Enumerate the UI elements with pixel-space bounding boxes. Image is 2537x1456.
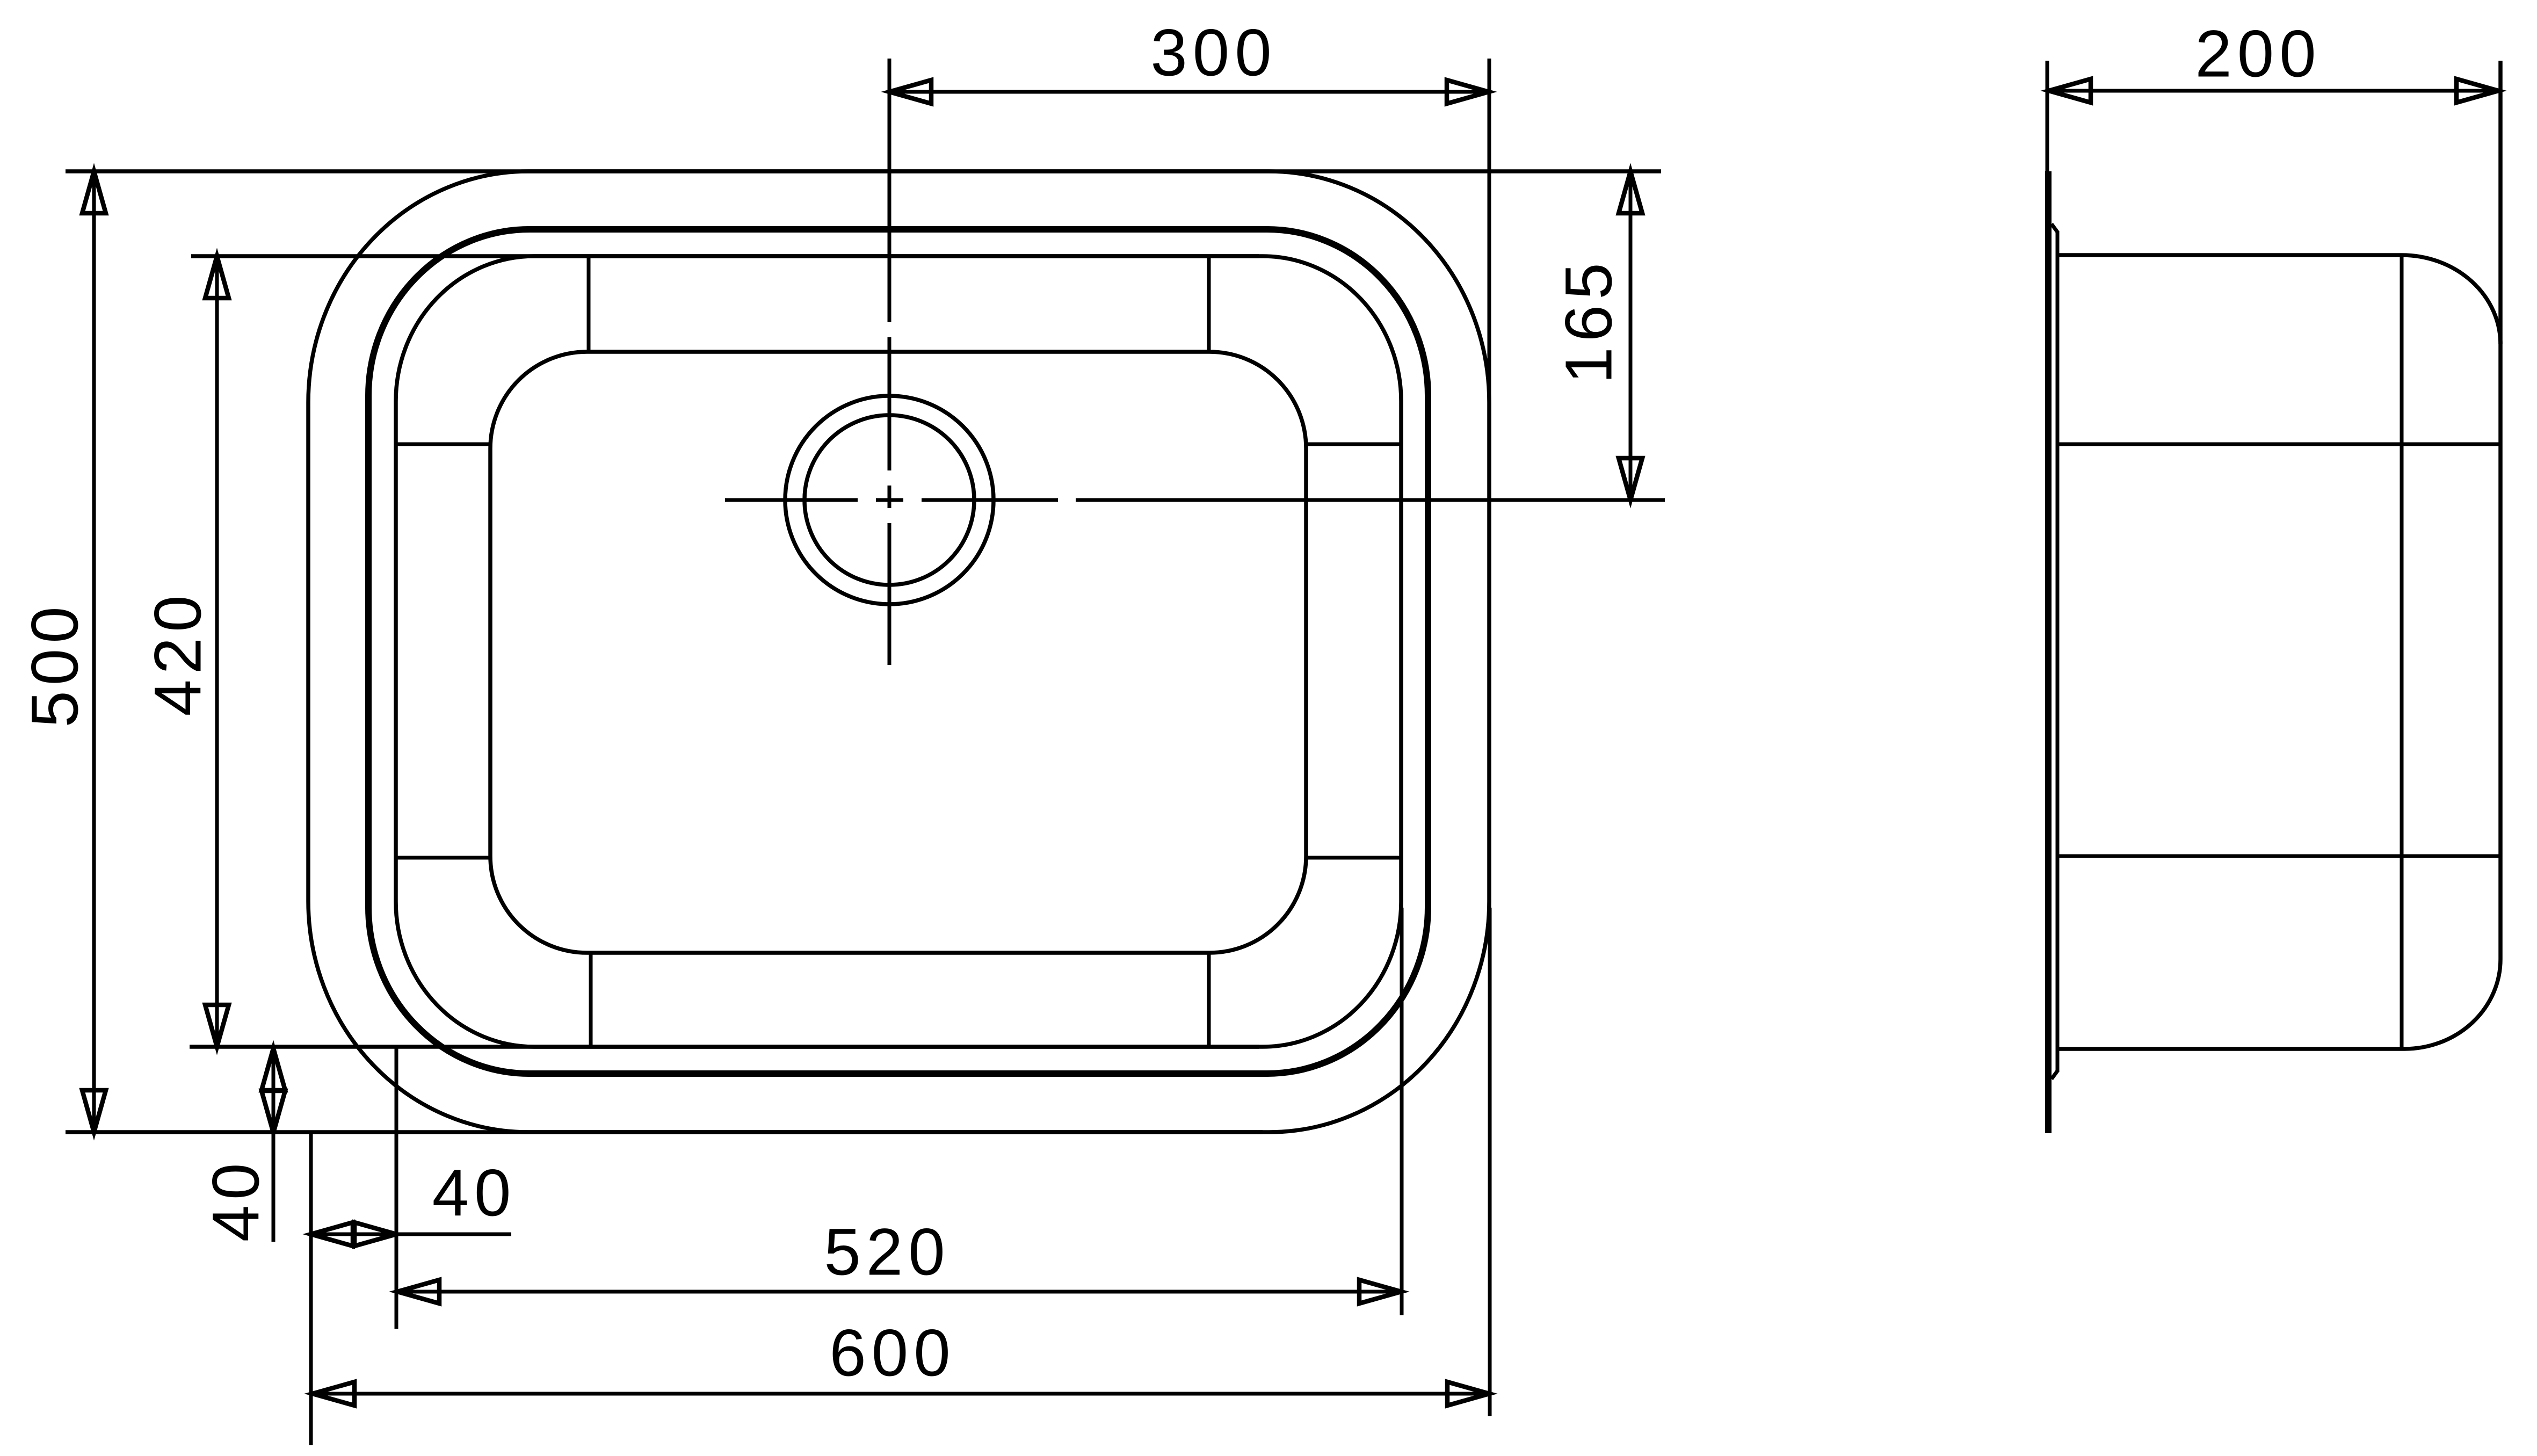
svg-text:420: 420 bbox=[142, 590, 215, 716]
svg-text:40: 40 bbox=[200, 1158, 273, 1242]
svg-text:40: 40 bbox=[432, 1157, 517, 1230]
svg-text:520: 520 bbox=[824, 1216, 950, 1290]
svg-text:500: 500 bbox=[19, 601, 92, 727]
svg-text:600: 600 bbox=[829, 1317, 955, 1390]
svg-text:165: 165 bbox=[1553, 257, 1626, 383]
svg-text:300: 300 bbox=[1150, 17, 1277, 90]
svg-text:200: 200 bbox=[2195, 18, 2321, 91]
